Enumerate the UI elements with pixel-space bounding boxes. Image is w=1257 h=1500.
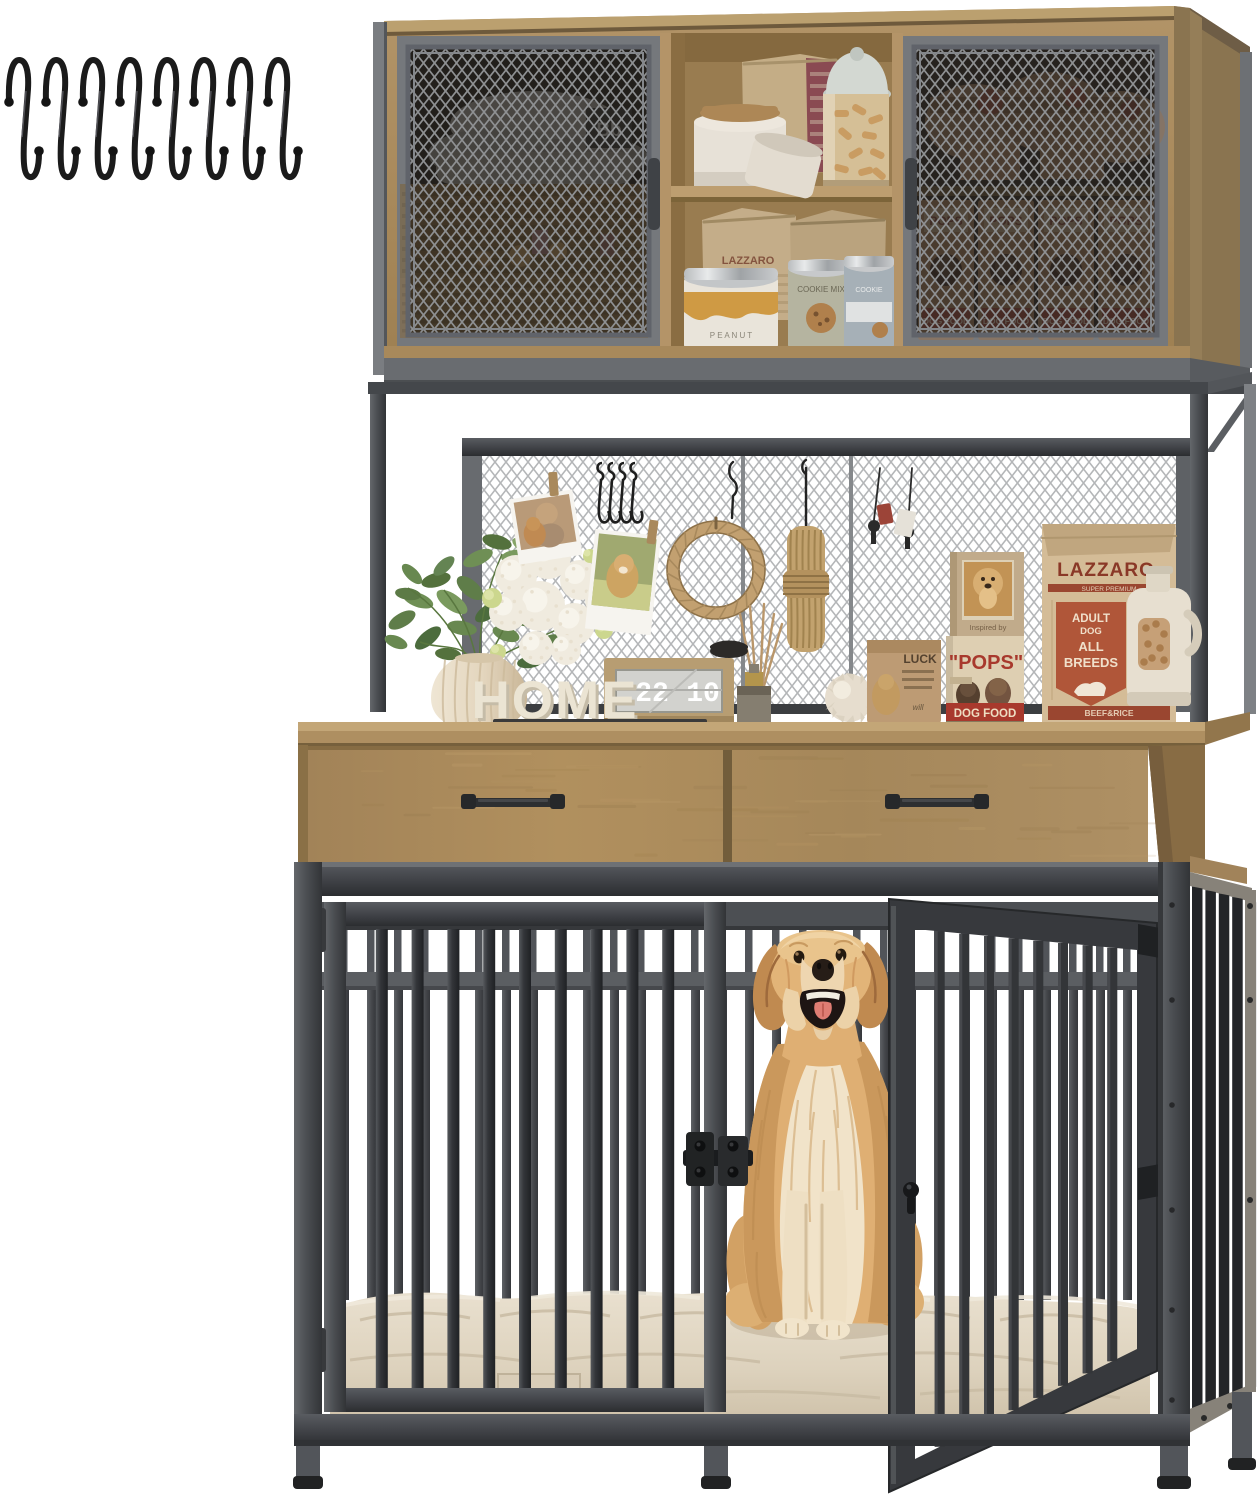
svg-text:10: 10: [686, 679, 720, 710]
svg-text:LAZZARO: LAZZARO: [1057, 560, 1155, 581]
svg-text:DOG: DOG: [1080, 626, 1102, 637]
svg-text:COOKIE: COOKIE: [855, 287, 883, 294]
svg-text:BREEDS: BREEDS: [1064, 655, 1119, 670]
svg-text:SUPER PREMIUM: SUPER PREMIUM: [1082, 586, 1137, 593]
svg-text:BEEF&RICE: BEEF&RICE: [1084, 708, 1133, 718]
svg-text:Inspired by: Inspired by: [970, 623, 1007, 632]
svg-text:DOG FOOD: DOG FOOD: [954, 708, 1017, 720]
svg-text:ADULT: ADULT: [1072, 613, 1110, 625]
svg-text:LAZZARO: LAZZARO: [722, 255, 775, 267]
svg-text:P E A N U T: P E A N U T: [710, 331, 753, 340]
svg-text:COOKIE MIX: COOKIE MIX: [797, 285, 845, 294]
svg-text:LUCK: LUCK: [903, 652, 937, 666]
svg-text:"POPS": "POPS": [949, 652, 1024, 674]
svg-text:ALL: ALL: [1078, 639, 1103, 654]
svg-text:will: will: [912, 703, 923, 712]
